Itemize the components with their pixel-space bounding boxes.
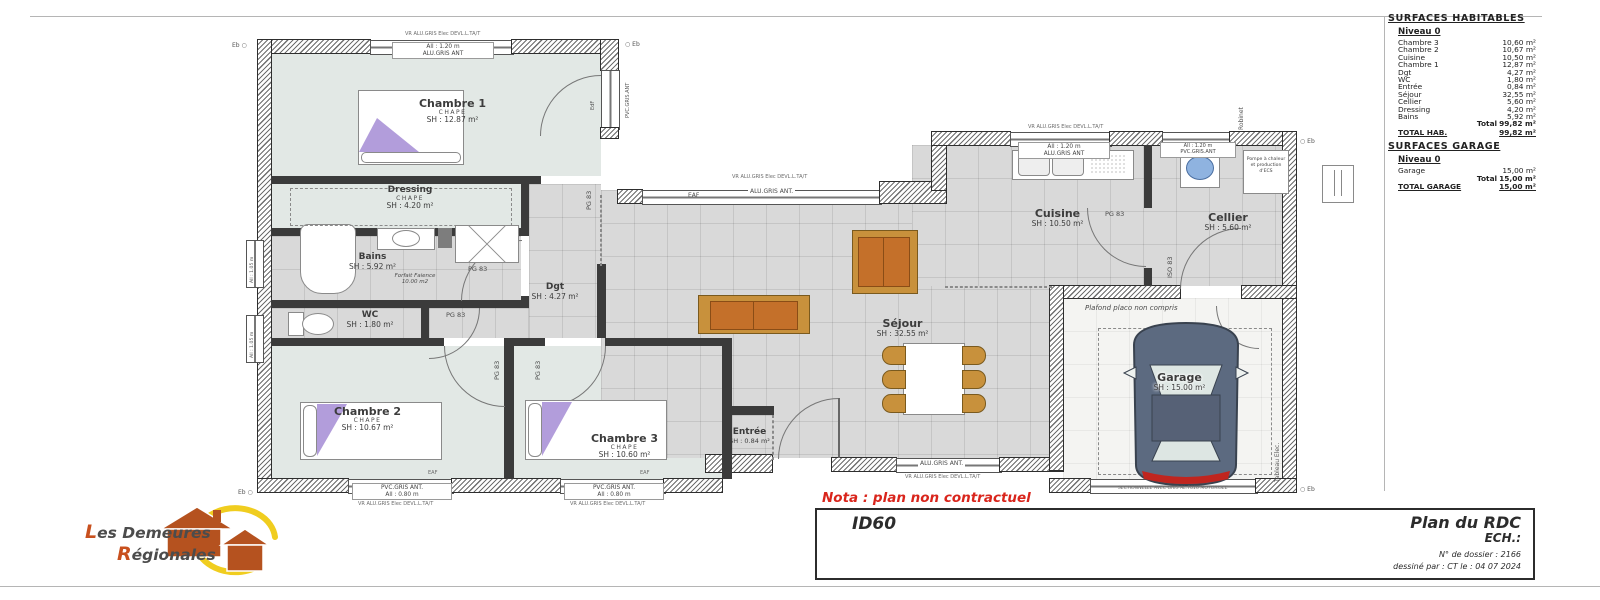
wall-ch1-top-left (258, 40, 370, 53)
vr-label-ch2-bottom: VR ALU.GRIS Elec DEVL.L.TA/T (358, 501, 433, 507)
heat-pump-box: Pompe à chaleur et production d'ECS (1243, 150, 1289, 194)
vr-label-ch3-bottom: VR ALU.GRIS Elec DEVL.L.TA/T (570, 501, 645, 507)
drawing-title: Plan du RDC (1410, 513, 1521, 532)
label-robinet: Robinet (1238, 107, 1245, 130)
chair-left-2 (882, 370, 906, 389)
shower (455, 225, 519, 263)
label-eaf-sejour: EAF (688, 192, 699, 199)
label-sectionnelle: SECTIONNELLE AVEC GRIS AL.7016 MOTORISEE (1118, 486, 1228, 491)
chair-right-3 (962, 394, 986, 413)
wall-wing-bottom-1 (258, 479, 348, 492)
door-label-chambre2: PG 83 (493, 361, 501, 380)
surfaces-total-garage-row: TOTAL GARAGE15,00 m² (1388, 183, 1536, 190)
wall-cuisine-cellier-top (1144, 145, 1152, 208)
dash-cuisine-zone (945, 286, 1052, 288)
surfaces-garage-total-row: Total15,00 m² (1388, 175, 1536, 182)
wall-garage-left (1050, 286, 1063, 470)
wall-ch2-ch3 (504, 346, 514, 479)
surfaces-total-row: Total99,82 m² (1388, 120, 1536, 127)
surfaces-panel: SURFACES HABITABLES Niveau 0 Chambre 310… (1388, 13, 1536, 191)
bed-chambre3-pillow (528, 403, 542, 457)
chair-left-3 (882, 394, 906, 413)
armchair-cushion-1 (858, 237, 885, 287)
eb-marker-1: Eb ○ (232, 42, 247, 49)
wall-sejour-top-left (618, 190, 642, 203)
wall-porch-step (706, 455, 772, 472)
title-block: ID60 Plan du RDC ECH.: N° de dossier : 2… (815, 508, 1535, 580)
door-entree-leaf (838, 398, 840, 458)
model-id: ID60 (852, 514, 896, 534)
window-bains-left (246, 240, 264, 288)
logo-text-line2: Régionales (117, 543, 216, 565)
drawn-by: dessiné par : CT le : 04 07 2024 (1393, 562, 1521, 571)
label-wc: WC SH : 1.80 m² (340, 311, 400, 328)
label-chambre3: Chambre 3 CHAPE SH : 10.60 m² (572, 433, 677, 459)
bains-sink-bowl (392, 230, 420, 247)
label-bains: Bains SH : 5.92 m² (335, 253, 410, 270)
label-chambre1: Chambre 1 CHAPE SH : 12.87 m² (400, 98, 505, 124)
vr-label-ch1-top: VR ALU.GRIS Elec DEVL.L.TA/T (405, 31, 480, 37)
eb-marker-5: ○ Eb (1300, 486, 1315, 493)
label-dgt: Dgt SH : 4.27 m² (515, 283, 595, 300)
vr-label-sejour-top: VR ALU.GRIS Elec DEVL.L.TA/T (732, 174, 807, 180)
wall-bains-wc (271, 300, 521, 308)
label-eaf-ch2: EAF (428, 470, 437, 476)
label-plafond-placo: Plafond placo non compris (1085, 304, 1178, 312)
window-chambre1-right (601, 70, 620, 130)
wall-sejour-bottom-1 (832, 458, 896, 471)
dining-table (903, 343, 965, 415)
dossier-number: N° de dossier : 2166 (1439, 550, 1521, 559)
wall-ch3-top (605, 338, 732, 346)
chair-right-1 (962, 346, 986, 365)
wall-north-1 (932, 132, 1010, 145)
label-cellier: Cellier SH : 5.60 m² (1182, 212, 1274, 232)
wall-dressing-right (521, 184, 529, 236)
label-garage: Garage SH : 15.00 m² (1132, 372, 1227, 392)
window-label-ch3-bottom: PVC.GRIS ANT. All : 0.80 m (564, 483, 664, 500)
door-label-wc: PG 83 (446, 311, 465, 319)
label-tableau-elec: Tableau Elec. (1274, 443, 1281, 482)
door-label-chambre1: PG 83 (585, 191, 593, 210)
heat-pump-label-2: et production d'ECS (1244, 163, 1288, 175)
floor-plan-sheet: Pompe à chaleur et production d'ECS Cham… (0, 0, 1600, 600)
eb-marker-3: ○ Eb (1300, 138, 1315, 145)
window-label-ch2-bottom: PVC.GRIS ANT. All : 0.80 m (352, 483, 452, 500)
window-label-bains-left: All : 1.05 m (250, 257, 255, 283)
door-label-cellier-garage: ISO 83 (1166, 257, 1174, 279)
wall-garage-bottom-left (1050, 479, 1090, 492)
surfaces-total-hab-row: TOTAL HAB.99,82 m² (1388, 129, 1536, 136)
label-chambre2: Chambre 2 CHAPE SH : 10.67 m² (315, 406, 420, 432)
surfaces-level: Niveau 0 (1398, 27, 1536, 37)
wall-ch1-dressing (271, 176, 541, 184)
label-forfait-faience: Forfait Faience 10.00 m2 (385, 273, 445, 285)
sofa-cushion-1 (710, 301, 755, 330)
wall-north-2 (1110, 132, 1162, 145)
surfaces-title: SURFACES HABITABLES (1388, 13, 1536, 24)
label-eaf-ch3: EAF (640, 470, 649, 476)
window-label-ch1-right-pvc: PVC.GRIS.ANT (625, 83, 631, 118)
window-label-ch1-right-edf: EdF (590, 101, 596, 110)
wall-ch1-right-top (601, 40, 618, 70)
logo-text-line1: Les Demeures (85, 521, 211, 543)
label-entree: Entrée SH : 0.84 m² (712, 428, 787, 444)
wall-wing-bottom-3 (664, 479, 722, 492)
wall-cuisine-cellier-bottom (1144, 268, 1152, 286)
chair-left-1 (882, 346, 906, 365)
window-wc-left (246, 315, 264, 363)
wall-cellier-garage-2 (1242, 286, 1296, 298)
surfaces-garage-level: Niveau 0 (1398, 155, 1536, 165)
eb-marker-2: ○ Eb (625, 41, 640, 48)
wall-wc-right (421, 308, 429, 342)
chair-right-2 (962, 370, 986, 389)
car-top-view (1112, 315, 1260, 493)
toilet-bowl (302, 313, 334, 335)
wall-entree-top (722, 406, 774, 415)
cellier-basin-bowl (1186, 156, 1214, 180)
label-cuisine: Cuisine SH : 10.50 m² (1010, 208, 1105, 228)
door-label-cuisine: PG 83 (1105, 210, 1124, 218)
vr-label-cuisine-top: VR ALU.GRIS Elec DEVL.L.TA/T (1028, 124, 1103, 130)
dash-dgt-sejour (600, 195, 602, 266)
company-logo: Les Demeures Régionales (75, 495, 290, 590)
door-label-chambre3: PG 83 (534, 361, 542, 380)
bains-column (438, 228, 452, 248)
door-label-bains: PG 83 (468, 265, 487, 273)
scale-label: ECH.: (1485, 531, 1521, 545)
window-label-cuisine-top: All : 1.20 m ALU.GRIS ANT (1018, 142, 1110, 159)
nota-disclaimer: Nota : plan non contractuel (822, 490, 1031, 506)
vr-label-sejour-bottom: VR ALU.GRIS Elec DEVL.L.TA/T (905, 474, 980, 480)
exterior-unit-line (1334, 170, 1342, 196)
wall-ch2-ch3-top-stub (504, 338, 545, 346)
window-label-cellier-top: All : 1.20 m PVC.GRIS.ANT (1160, 142, 1236, 158)
armchair-cushion-2 (883, 237, 910, 287)
wall-wing-bottom-2 (452, 479, 560, 492)
wall-ch2-top (271, 338, 444, 346)
frame-top-line (30, 16, 1542, 17)
wall-ch1-right-stub (601, 128, 618, 138)
window-label-wc-left: All : 1.05 m (250, 332, 255, 358)
sofa-cushion-2 (753, 301, 798, 330)
wall-dgt-sejour (597, 264, 606, 338)
surfaces-garage-title: SURFACES GARAGE (1388, 141, 1536, 152)
label-dressing: Dressing CHAPE SH : 4.20 m² (360, 186, 460, 210)
label-sejour: Séjour SH : 32.55 m² (855, 318, 950, 338)
bed-chambre1-pillow (361, 152, 461, 163)
frame-panel-divider (1384, 16, 1385, 491)
window-label-sejour-top: ALU.GRIS ANT. (748, 188, 795, 195)
window-label-sejour-bottom: ALU.GRIS ANT. (918, 460, 965, 467)
wall-cellier-garage-1 (1050, 286, 1180, 298)
window-label-ch1-top: All : 1.20 m ALU.GRIS ANT (392, 42, 494, 59)
